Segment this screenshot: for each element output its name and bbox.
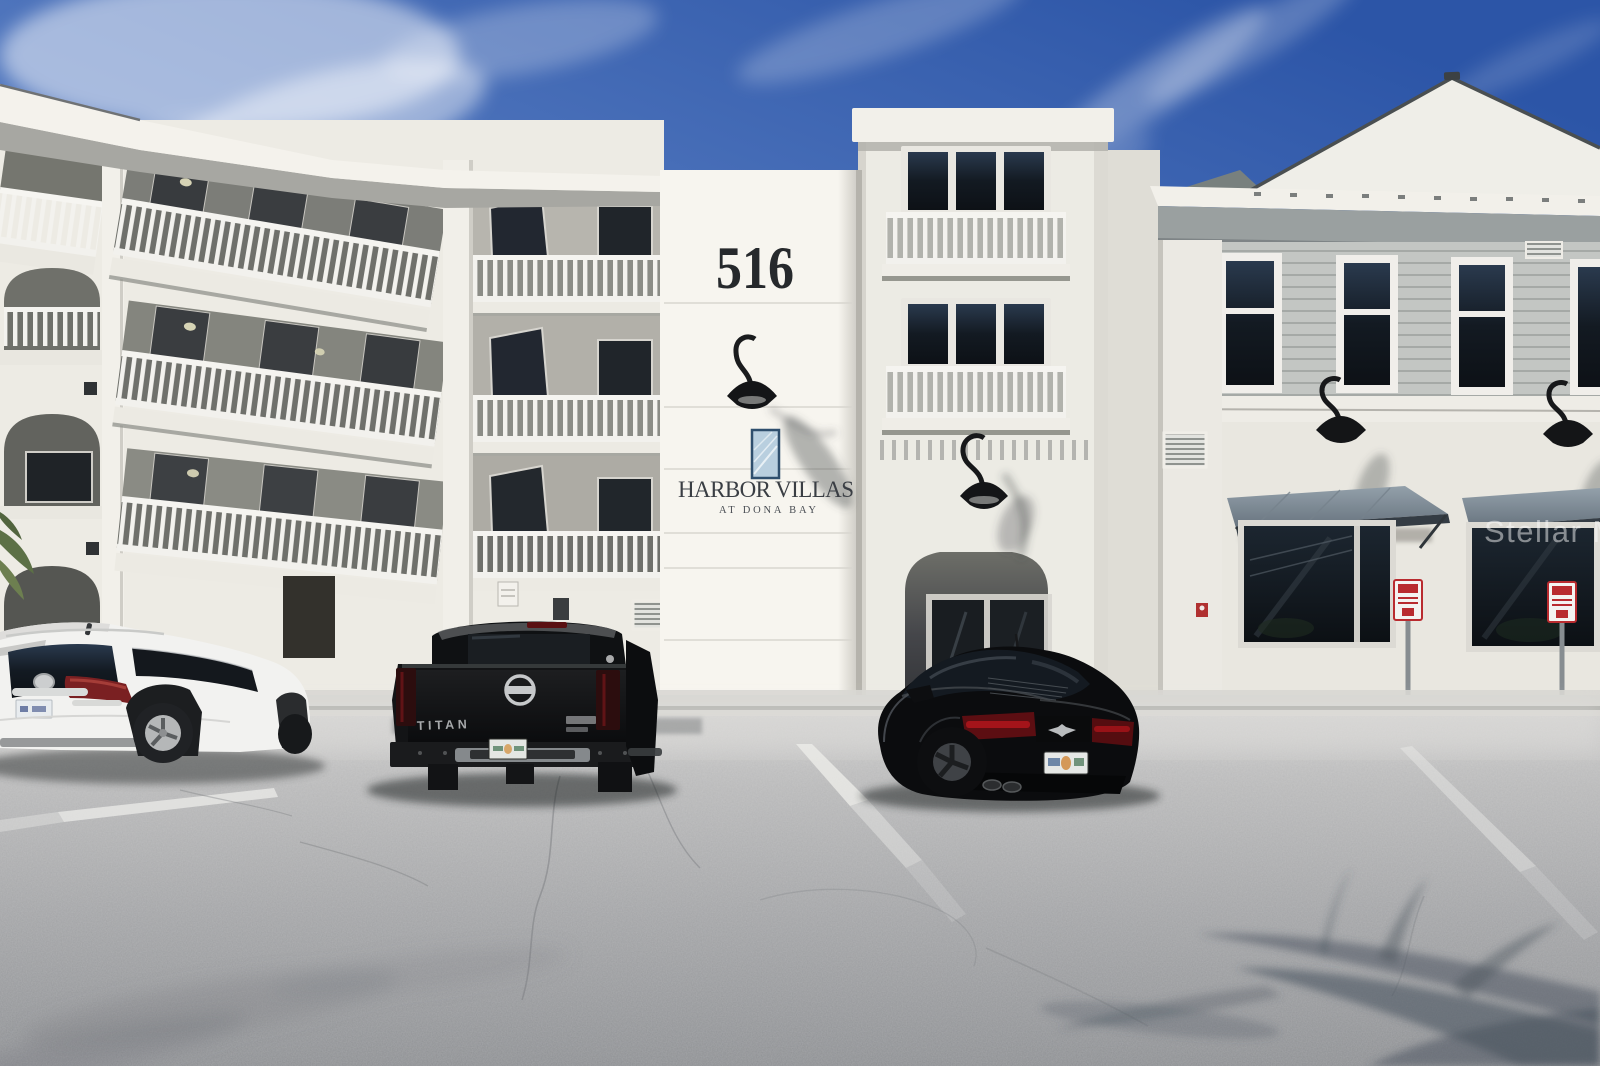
tower-cornice xyxy=(852,108,1114,142)
address-number: 516 xyxy=(716,235,794,301)
louver-vent xyxy=(1164,433,1206,467)
truck-taillight xyxy=(396,668,416,726)
logo-plaque xyxy=(752,430,779,478)
side-panel xyxy=(1108,150,1160,712)
juliet-railing xyxy=(882,366,1070,435)
truck-taillight xyxy=(596,670,620,730)
wall-plaque xyxy=(498,582,518,606)
vent xyxy=(84,382,97,395)
balcony-railing xyxy=(0,150,109,274)
vent xyxy=(86,542,99,555)
building-name-sign: HARBOR VILLAS xyxy=(678,477,854,502)
louver-vent xyxy=(1526,242,1562,258)
tower-windows xyxy=(901,298,1051,370)
truck-hitch xyxy=(506,764,534,784)
suv-emblem xyxy=(34,674,54,690)
bay-row xyxy=(473,194,662,591)
pillar xyxy=(443,160,473,705)
juliet-railing xyxy=(882,212,1070,281)
storefront-window xyxy=(1238,520,1396,648)
corner-column xyxy=(1158,240,1222,712)
door xyxy=(283,576,335,658)
railing-shadow xyxy=(872,440,1088,460)
exhaust-tip xyxy=(1003,782,1021,792)
window xyxy=(26,452,92,502)
tower-windows xyxy=(901,146,1051,216)
suv-front-wheel xyxy=(278,714,312,754)
exhaust-tip xyxy=(983,780,1001,790)
entry-tower xyxy=(852,108,1114,720)
truck-decal xyxy=(606,655,614,663)
real-estate-photo: 516 HARBOR VILLAS AT DONA BAY xyxy=(0,0,1600,1066)
watermark: Stellar MLS xyxy=(1484,514,1600,549)
address-sign-wall: 516 HARBOR VILLAS AT DONA BAY xyxy=(660,170,863,718)
truck-badge: TITAN xyxy=(417,717,471,733)
building-subtitle-sign: AT DONA BAY xyxy=(719,505,816,516)
louver-vent xyxy=(633,601,664,629)
scupper xyxy=(553,598,569,620)
truck-brake-light xyxy=(527,622,567,628)
